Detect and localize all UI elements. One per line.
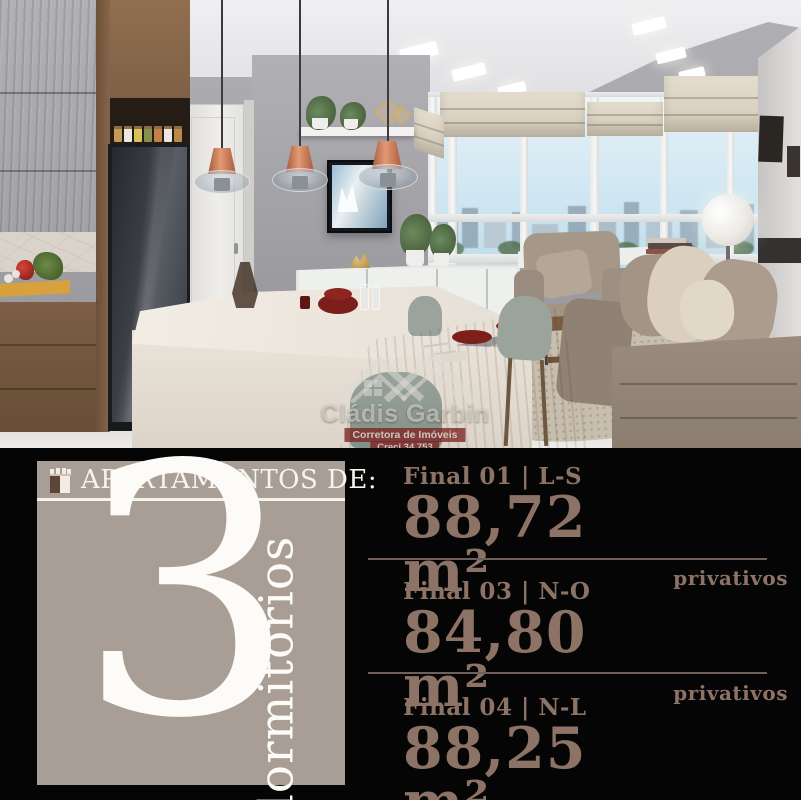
red-pepper bbox=[16, 260, 34, 280]
plant-pot bbox=[312, 118, 328, 129]
sofa-seam bbox=[620, 417, 798, 419]
sofa-seam bbox=[620, 383, 798, 385]
plant-pot bbox=[344, 119, 358, 129]
tv-artwork bbox=[338, 184, 359, 212]
kitchen-cabinet bbox=[0, 0, 96, 232]
sofa bbox=[560, 240, 801, 448]
listing-area: 88,25 m² bbox=[403, 722, 649, 800]
spice-jar bbox=[174, 126, 182, 142]
floor-lamp-globe bbox=[702, 194, 754, 246]
spice-jar bbox=[124, 126, 132, 142]
divider bbox=[368, 672, 767, 674]
spice-jar bbox=[164, 126, 172, 142]
watermark-subtitle: Corretora de Imóveis bbox=[344, 428, 465, 442]
apartment-photo: Cládis Garbin Corretora de Imóveis Creci… bbox=[0, 0, 801, 448]
dinner-plate bbox=[452, 330, 492, 344]
door-handle bbox=[234, 243, 238, 254]
red-bowl bbox=[324, 288, 352, 300]
pendant-cord bbox=[299, 0, 301, 148]
pendant-bulb bbox=[292, 176, 308, 189]
drawer-seam bbox=[0, 344, 96, 346]
spice-shelf bbox=[110, 98, 190, 144]
over-fridge-cabinet bbox=[110, 0, 190, 98]
dining-chair bbox=[496, 294, 554, 362]
castle-icon bbox=[48, 467, 72, 493]
bedroom-label: dormitórios bbox=[250, 536, 305, 800]
watermark-roofs-icon bbox=[328, 352, 478, 404]
sofa-base bbox=[612, 336, 801, 448]
pendant-bulb bbox=[380, 173, 396, 187]
watermark-creci: Creci 34.753 bbox=[370, 441, 439, 448]
picture-frame bbox=[787, 146, 800, 177]
cabinet-seam bbox=[0, 170, 96, 172]
divider bbox=[368, 558, 767, 560]
spice-jar bbox=[114, 126, 122, 142]
plant-pot bbox=[406, 250, 424, 266]
roman-shade bbox=[440, 92, 585, 137]
spice-jar bbox=[154, 126, 162, 142]
cabinet-seam bbox=[0, 92, 96, 94]
plant-pot bbox=[434, 253, 449, 266]
spice-jar bbox=[134, 126, 142, 142]
bedrooms-panel: APARTAMENTOS DE: 3 dormitórios bbox=[37, 461, 345, 785]
watermark-name: Cládis Garbin bbox=[278, 400, 532, 429]
drawer-seam bbox=[0, 388, 96, 390]
spice-jar bbox=[144, 126, 152, 142]
watermark: Cládis Garbin Corretora de Imóveis Creci… bbox=[318, 352, 492, 448]
pendant-bulb bbox=[214, 178, 230, 191]
roman-shade bbox=[587, 102, 663, 136]
pendant-cord bbox=[221, 0, 223, 150]
wine-glass bbox=[360, 284, 369, 310]
mushroom bbox=[12, 270, 20, 278]
wine-glass bbox=[372, 286, 380, 310]
listing-final-04: Final 04 | N-L 88,25 m² privativos bbox=[403, 694, 788, 800]
picture-frame bbox=[758, 116, 784, 163]
real-estate-flyer: Cládis Garbin Corretora de Imóveis Creci… bbox=[0, 0, 801, 800]
pendant-cord bbox=[387, 0, 389, 145]
red-cup bbox=[300, 296, 310, 309]
